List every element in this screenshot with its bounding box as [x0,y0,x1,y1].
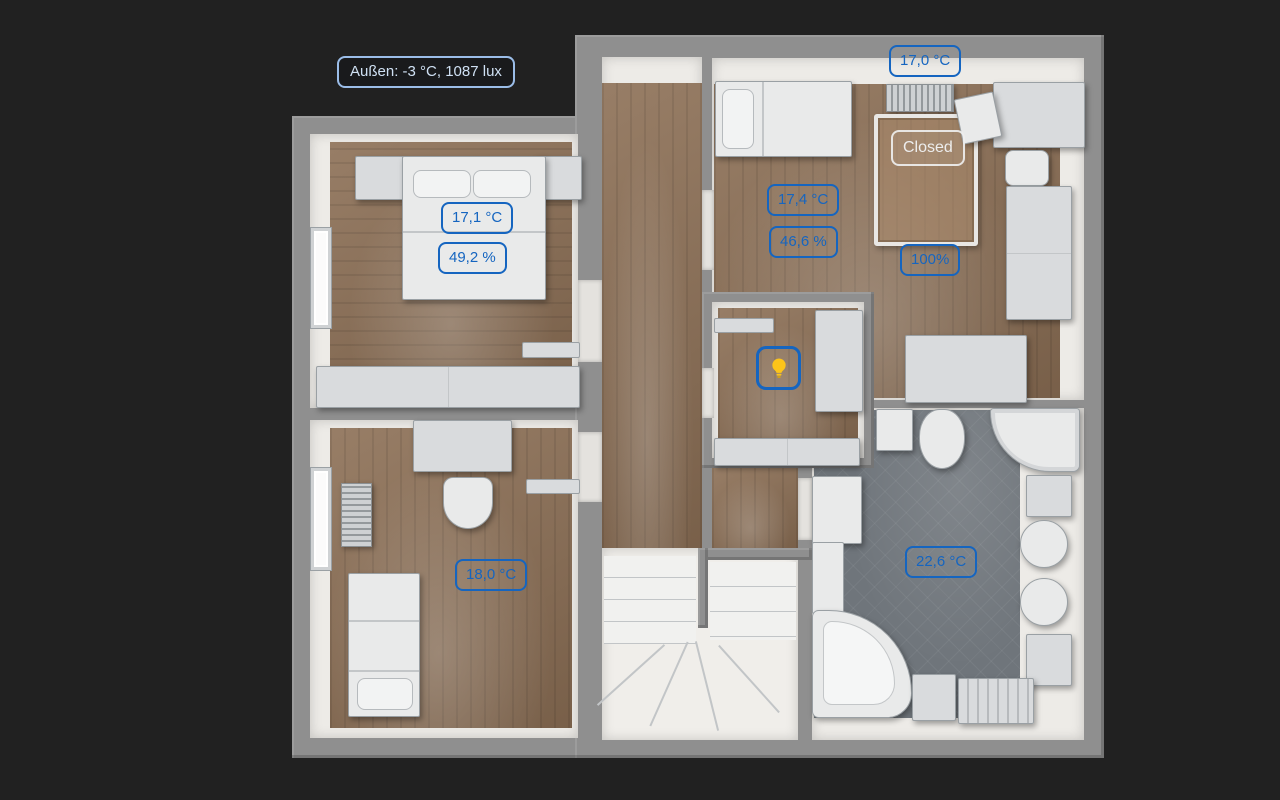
wall-shelf-bedroom-left [522,342,580,358]
bedroom-right-radiator-temp-badge[interactable]: 17,0 °C [889,45,961,77]
stairs-top-wall [700,548,812,560]
lightbulb-on-icon [766,355,792,381]
closet-cabinet-divider [787,439,788,465]
stairs-divider-wall [698,548,708,628]
office-temp-badge[interactable]: 18,0 °C [455,559,527,591]
closet-cabinets [714,438,860,466]
window-bedroom-left [310,227,332,329]
single-bed-seam [762,82,764,156]
desk-bedroom-right [993,82,1085,148]
wardrobe-seam [1007,253,1071,254]
bathroom-temp-badge[interactable]: 22,6 °C [905,546,977,578]
outside-sensor-badge[interactable]: Außen: -3 °C, 1087 lux [337,56,515,88]
shutter-position-badge[interactable]: 100% [900,244,960,276]
bedroom-left-humidity-badge[interactable]: 49,2 % [438,242,507,274]
single-bed-pillow [722,89,754,149]
radiator-bedroom-right [886,84,954,112]
corridor-floor [602,83,702,557]
room-corridor [602,57,702,557]
radiator-office [341,483,372,547]
nightstand-left [355,156,404,200]
desk-office [413,420,512,472]
bathtub-ledge [812,542,844,614]
pillow-right [473,170,531,198]
bath-cabinet-top [1026,475,1072,517]
bedroom-right-temp-badge[interactable]: 17,4 °C [767,184,839,216]
single-bed [715,81,852,157]
desk-chair [1005,150,1049,186]
laundry-basket [958,678,1034,724]
bathtub-basin [823,621,895,705]
wall-shelf-office [526,479,580,494]
bathtub-cabinet [812,476,862,544]
smart-home-floorplan: Außen: -3 °C, 1087 lux 17,0 °C Closed 17… [0,0,1280,800]
sideboard-bedroom-left [316,366,580,408]
pillow-left [413,170,471,198]
cabinet-office [348,573,420,717]
closet-shelf [714,318,774,333]
washer [912,674,956,721]
door-bedroom-right [702,190,714,270]
window-office [310,467,332,571]
cabinet-seam-2 [349,670,419,672]
sideboard-bedroom-right [905,335,1027,403]
cabinet-drawer [357,678,413,710]
sink-bottom [1020,578,1068,626]
door-closet [702,368,714,418]
door-office [578,432,602,502]
bedroom-left-temp-badge[interactable]: 17,1 °C [441,202,513,234]
toilet [919,409,965,469]
toilet-cistern [876,409,913,451]
office-chair [443,477,493,529]
door-bedroom-left [578,280,602,362]
closet-wardrobe [815,310,863,412]
wardrobe-bedroom-right [1006,186,1072,320]
bedroom-right-humidity-badge[interactable]: 46,6 % [769,226,838,258]
roof-window-state-badge[interactable]: Closed [891,130,965,166]
closet-light-badge[interactable] [756,346,801,390]
sideboard-divider [448,367,449,407]
cabinet-seam-1 [349,620,419,622]
door-bathroom [798,478,812,540]
sink-top [1020,520,1068,568]
landing-floor [712,468,798,548]
stairs-left-flight [604,556,696,644]
stairs-right-flight [710,562,796,640]
